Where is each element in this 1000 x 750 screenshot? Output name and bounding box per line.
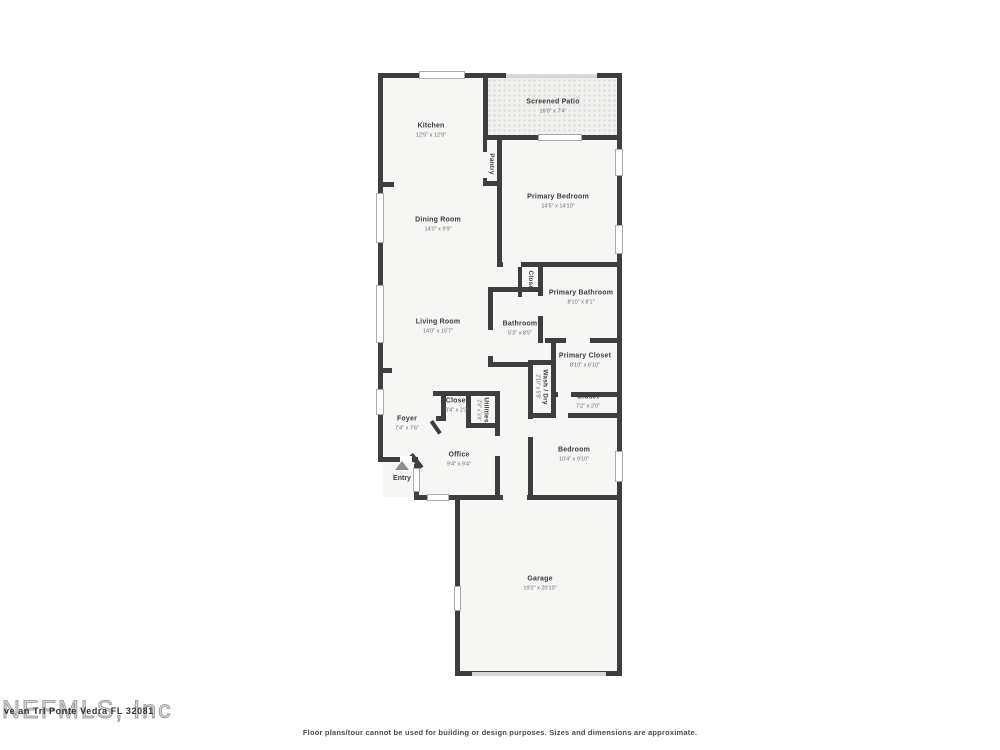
patio-screen — [506, 74, 597, 77]
room-dims: 3'4" x 2'3" — [445, 407, 469, 414]
room-name: Primary Closet — [559, 353, 611, 362]
door-opening — [528, 419, 533, 437]
room-label-living-room: Living Room 14'0" x 15'7" — [416, 319, 461, 336]
window-marker — [376, 193, 384, 243]
wall-segment — [551, 338, 556, 417]
room-label-garage: Garage 19'2" x 20'10" — [523, 576, 556, 593]
room-dims: 9'4" x 9'4" — [447, 461, 471, 468]
room-name: Bathroom — [503, 321, 538, 330]
room-dims: 10'4" x 9'10" — [558, 456, 590, 463]
room-name: Dining Room — [415, 217, 461, 226]
room-name: Closet — [445, 398, 469, 407]
room-name: Wash / Dry — [541, 369, 549, 404]
room-name: Living Room — [416, 319, 461, 328]
window-marker — [376, 389, 384, 415]
room-name: Primary Bathroom — [549, 290, 613, 299]
room-name: Pantry — [487, 153, 495, 174]
wall-segment — [488, 73, 506, 78]
window-marker — [419, 71, 465, 79]
room-label-primary-bedroom: Primary Bedroom 14'5" x 14'10" — [527, 194, 589, 211]
room-label-kitchen: Kitchen 12'5" x 12'9" — [416, 123, 446, 140]
room-dims: 2'9" x 3'4" — [476, 397, 482, 422]
room-dims: 16'0" x 7'4" — [526, 108, 579, 115]
wall-segment — [483, 73, 488, 140]
room-dims: 14'0" x 9'9" — [415, 226, 461, 233]
room-label-dining-room: Dining Room 14'0" x 9'9" — [415, 217, 461, 234]
room-label-screened-patio: Screened Patio 16'0" x 7'4" — [526, 99, 579, 116]
room-name: Garage — [523, 576, 556, 585]
room-dims: 8'10" x 6'10" — [559, 362, 611, 369]
entry-arrow-icon — [395, 461, 409, 470]
window-marker — [454, 586, 461, 611]
window-marker — [376, 285, 384, 343]
window-marker — [615, 149, 623, 176]
room-label-foyer-closet: Closet 3'4" x 2'3" — [445, 398, 469, 415]
door-opening — [558, 392, 571, 397]
room-label-bathroom: Bathroom 5'3" x 8'5" — [503, 321, 538, 338]
room-dims: 7'2" x 2'0" — [576, 403, 600, 410]
room-dims: 7'4" x 7'6" — [395, 425, 419, 432]
door-opening — [566, 338, 590, 343]
wall-segment — [518, 267, 522, 297]
room-label-wash-dry: Wash / Dry 2'10" x 5'9" — [534, 369, 549, 404]
wall-segment — [378, 182, 394, 187]
room-name: Closet — [526, 270, 534, 291]
room-name: Primary Bedroom — [527, 194, 589, 203]
room-label-primary-bathroom: Primary Bathroom 8'10" x 8'1" — [549, 290, 613, 307]
room-dims: 12'5" x 12'9" — [416, 132, 446, 139]
wall-segment — [528, 360, 533, 417]
wall-segment — [436, 416, 446, 421]
window-marker — [615, 225, 623, 254]
room-name: Utilities — [482, 397, 490, 422]
wall-segment — [617, 73, 622, 140]
room-name: Screened Patio — [526, 99, 579, 108]
wall-segment — [497, 140, 502, 267]
window-marker — [427, 494, 449, 501]
door-opening — [503, 262, 521, 267]
room-dims: 8'10" x 8'1" — [549, 299, 613, 306]
wall-segment — [617, 140, 622, 676]
garage-door — [472, 672, 606, 676]
door-opening — [538, 296, 543, 316]
room-label-pantry: Pantry — [487, 153, 495, 174]
room-label-bedroom: Bedroom 10'4" x 9'10" — [558, 447, 590, 464]
wall-segment — [528, 413, 622, 418]
door-opening — [503, 495, 527, 500]
room-label-hall-closet: Closet — [526, 270, 534, 291]
room-name: Closet — [576, 394, 600, 403]
window-marker — [538, 134, 582, 141]
disclaimer-text: Floor plans/tour cannot be used for buil… — [0, 728, 1000, 737]
address-text: ve an Trl Ponte Vedra FL 32081 — [4, 706, 154, 716]
door-opening — [556, 413, 568, 418]
room-name: Bedroom — [558, 447, 590, 456]
room-dims: 14'0" x 15'7" — [416, 328, 461, 335]
room-dims: 14'5" x 14'10" — [527, 203, 589, 210]
entry-label: Entry — [393, 475, 411, 482]
room-label-bedroom-closet: Closet 7'2" x 2'0" — [576, 394, 600, 411]
window-marker — [615, 451, 623, 482]
door-opening — [495, 436, 500, 456]
room-label-primary-closet: Primary Closet 8'10" x 6'10" — [559, 353, 611, 370]
door-opening — [488, 330, 493, 356]
window-marker — [413, 468, 420, 492]
room-label-utilities: Utilities 2'9" x 3'4" — [475, 397, 490, 422]
room-label-office: Office 9'4" x 9'4" — [447, 452, 471, 469]
room-name: Kitchen — [416, 123, 446, 132]
floor-plan: Kitchen 12'5" x 12'9" Screened Patio 16'… — [0, 0, 1000, 750]
wall-segment — [378, 368, 392, 373]
room-name: Foyer — [395, 416, 419, 425]
room-dims: 19'2" x 20'10" — [523, 585, 556, 592]
wall-segment — [488, 362, 533, 367]
room-dims: 5'3" x 8'5" — [503, 330, 538, 337]
room-label-foyer: Foyer 7'4" x 7'6" — [395, 416, 419, 433]
room-name: Office — [447, 452, 471, 461]
